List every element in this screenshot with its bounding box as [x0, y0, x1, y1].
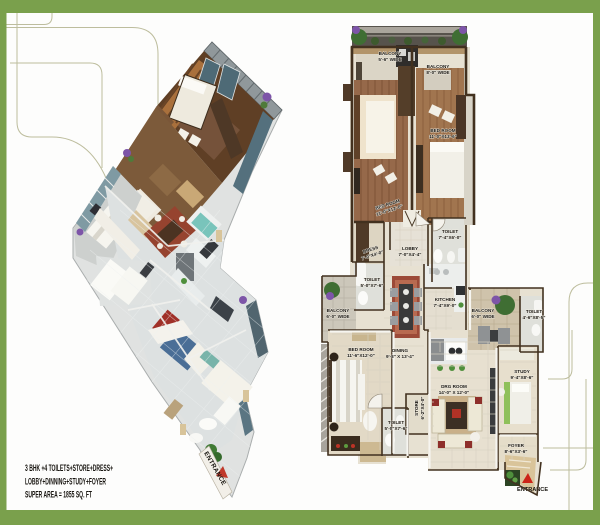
svg-text:DRG ROOM: DRG ROOM	[441, 384, 467, 389]
svg-text:TOILET: TOILET	[388, 420, 404, 425]
svg-text:TOILET: TOILET	[364, 277, 380, 282]
svg-text:8'-0" WIDE: 8'-0" WIDE	[426, 70, 449, 75]
svg-text:6'-2"X4'-0": 6'-2"X4'-0"	[420, 397, 425, 420]
svg-text:BED ROOM: BED ROOM	[430, 128, 455, 133]
svg-text:5'-6" WIDE: 5'-6" WIDE	[378, 57, 401, 62]
svg-text:3 BHK +4 TOILETS+STORE+DRESS+: 3 BHK +4 TOILETS+STORE+DRESS+	[25, 463, 113, 474]
svg-text:SUPER AREA = 1855 SQ. FT: SUPER AREA = 1855 SQ. FT	[25, 490, 92, 501]
svg-text:STORE: STORE	[414, 400, 419, 416]
svg-text:BALCONY: BALCONY	[327, 308, 350, 313]
svg-text:9'-4"X8'-6": 9'-4"X8'-6"	[511, 375, 534, 380]
svg-text:FOYER: FOYER	[508, 443, 525, 448]
svg-text:7'-4"X9'-0": 7'-4"X9'-0"	[434, 303, 457, 308]
svg-text:LOBBY+DINNING+STUDY+FOYER: LOBBY+DINNING+STUDY+FOYER	[25, 477, 106, 488]
svg-text:TOILET: TOILET	[526, 309, 542, 314]
svg-text:LOBBY: LOBBY	[402, 246, 418, 251]
svg-text:BALCONY: BALCONY	[472, 308, 495, 313]
svg-text:BALCONY: BALCONY	[379, 51, 402, 56]
svg-text:KITCHEN: KITCHEN	[435, 297, 456, 302]
svg-text:8'-6"X3'-6": 8'-6"X3'-6"	[505, 449, 528, 454]
svg-text:5'-0"X7'-6": 5'-0"X7'-6"	[385, 426, 408, 431]
svg-text:BALCONY: BALCONY	[427, 64, 450, 69]
svg-text:5'-0"X7'-6": 5'-0"X7'-6"	[361, 283, 384, 288]
svg-text:7'-0"X4'-4": 7'-0"X4'-4"	[399, 252, 422, 257]
svg-text:11'-6"X12'-0": 11'-6"X12'-0"	[347, 353, 375, 358]
svg-text:STUDY: STUDY	[514, 369, 530, 374]
svg-text:4'-6"X8'-5": 4'-6"X8'-5"	[523, 315, 546, 320]
svg-text:14'-0" X 12'-0": 14'-0" X 12'-0"	[439, 390, 470, 395]
svg-text:9'-8" X 13'-4": 9'-8" X 13'-4"	[386, 354, 414, 359]
svg-text:7'-4"X6'-0": 7'-4"X6'-0"	[439, 235, 462, 240]
svg-text:11'-0"X13'-6": 11'-0"X13'-6"	[429, 134, 457, 139]
svg-text:6'-0" WIDE: 6'-0" WIDE	[471, 314, 494, 319]
svg-text:TOILET: TOILET	[442, 229, 458, 234]
svg-text:BED ROOM: BED ROOM	[348, 347, 373, 352]
svg-text:DINING: DINING	[392, 348, 409, 353]
svg-text:6'-0" WIDE: 6'-0" WIDE	[326, 314, 349, 319]
